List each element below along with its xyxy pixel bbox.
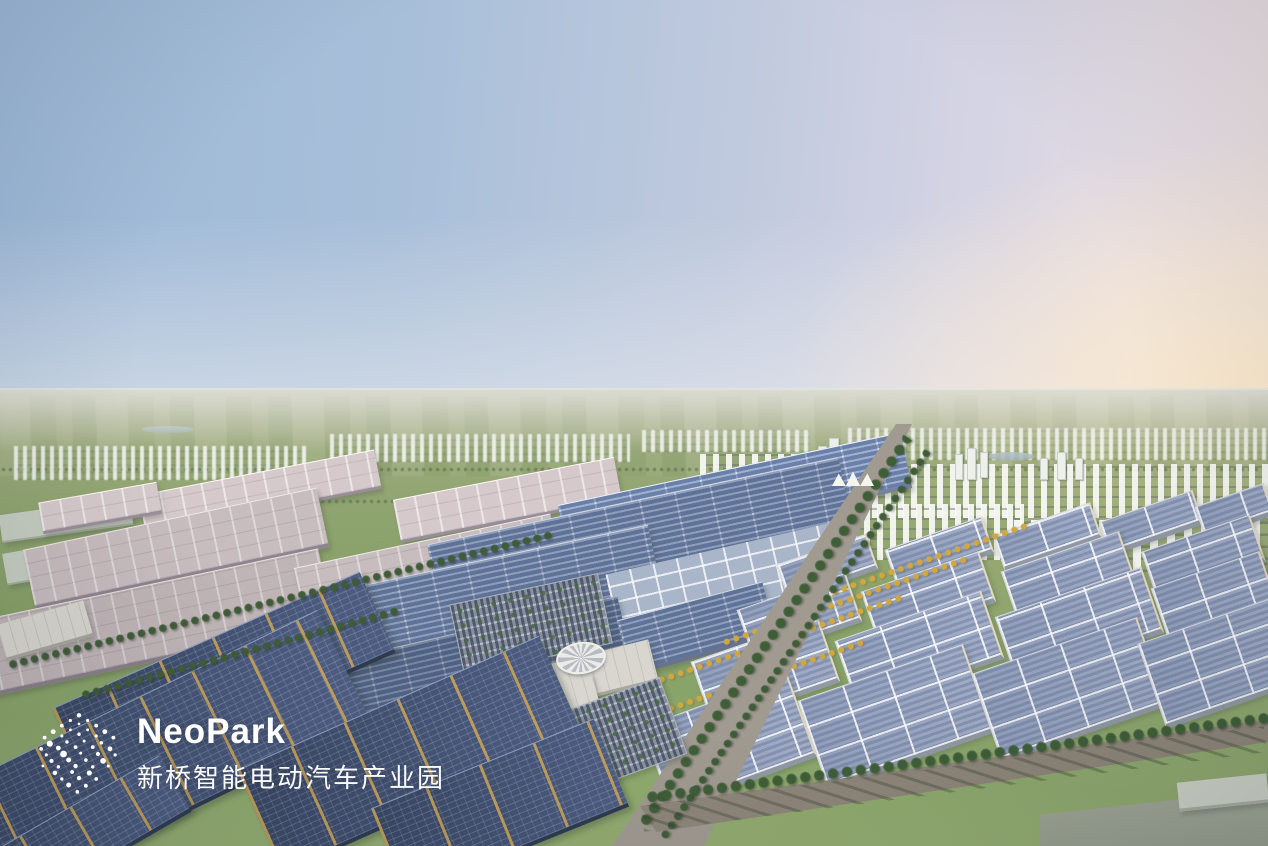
brand-subtitle: 新桥智能电动汽车产业园 — [137, 758, 445, 795]
neopark-dots-icon — [36, 708, 122, 800]
neopark-watermark: NeoPark 新桥智能电动汽车产业园 — [36, 708, 445, 800]
brand-name: NeoPark — [137, 714, 445, 749]
aerial-render: NeoPark 新桥智能电动汽车产业园 — [0, 0, 1268, 846]
